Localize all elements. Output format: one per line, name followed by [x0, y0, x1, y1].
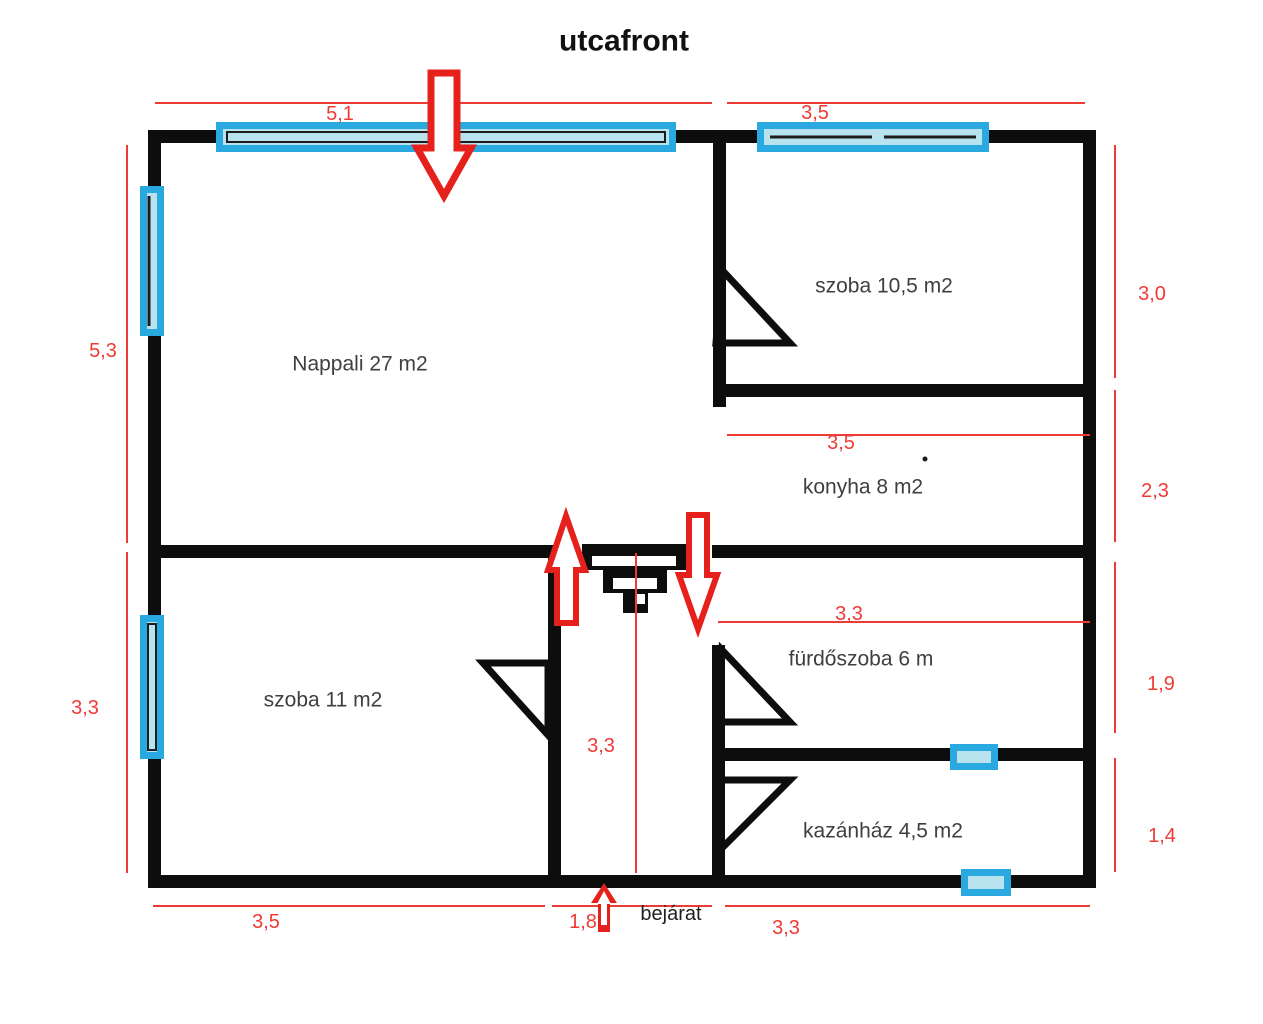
entrance-label: bejárat: [640, 903, 702, 925]
room-label-konyha: konyha 8 m2: [803, 476, 923, 499]
wall-furdo-kazan-divider: [712, 748, 1096, 761]
dim-right-szoba: 3,0: [1138, 283, 1166, 305]
dim-top-left: 5,1: [326, 103, 354, 125]
door-swing-szoba-felso: [716, 270, 790, 343]
room-label-kazanhaz: kazánház 4,5 m2: [803, 820, 963, 843]
wall-right: [1083, 130, 1096, 888]
door-swing-furdoszoba: [718, 650, 790, 722]
door-swing-szoba-also: [483, 663, 548, 735]
dim-bottom-left: 3,5: [252, 911, 280, 933]
direction-arrows: [417, 73, 717, 932]
dim-right-konyha: 2,3: [1141, 480, 1169, 502]
wall-nappali-szoba-divider: [148, 545, 548, 558]
window-kazan-small: [961, 869, 1011, 896]
page-title: utcafront: [559, 25, 689, 58]
wall-szoba-konyha-divider: [713, 384, 1096, 397]
dim-hall-depth: 3,3: [587, 735, 615, 757]
floor-plan: utcafront Nappali 27 m2 szoba 10,5 m2 ko…: [0, 0, 1263, 1024]
room-label-furdoszoba: fürdőszoba 6 m: [789, 648, 934, 671]
dim-furdo-width: 3,3: [835, 603, 863, 625]
dim-top-right: 3,5: [801, 102, 829, 124]
dimension-lines: [127, 103, 1115, 906]
room-label-nappali: Nappali 27 m2: [292, 353, 427, 376]
window-furdo-small: [950, 744, 998, 770]
dim-bottom-right: 3,3: [772, 917, 800, 939]
wall-furdo-top: [712, 545, 1096, 558]
hall-down-arrow-icon: [679, 515, 717, 629]
dim-right-furdo: 1,9: [1147, 673, 1175, 695]
dim-right-kazan: 1,4: [1148, 825, 1176, 847]
window-szoba-felso-top: [757, 122, 989, 152]
window-szoba-also-left: [140, 615, 164, 759]
room-label-szoba-felso: szoba 10,5 m2: [815, 275, 953, 298]
dim-left-upper: 5,3: [89, 340, 117, 362]
dim-bottom-entrance: 1,8: [569, 911, 597, 933]
windows: [140, 122, 1011, 896]
walls: [148, 130, 1096, 888]
dim-left-lower: 3,3: [71, 697, 99, 719]
window-nappali-left: [140, 186, 164, 336]
stray-dot: [923, 457, 928, 462]
door-swing-kazanhaz: [718, 780, 790, 848]
room-label-szoba-also: szoba 11 m2: [264, 689, 383, 712]
dim-konyha-width: 3,5: [827, 432, 855, 454]
wall-bottom: [148, 875, 1096, 888]
stairs-icon: [582, 544, 687, 613]
